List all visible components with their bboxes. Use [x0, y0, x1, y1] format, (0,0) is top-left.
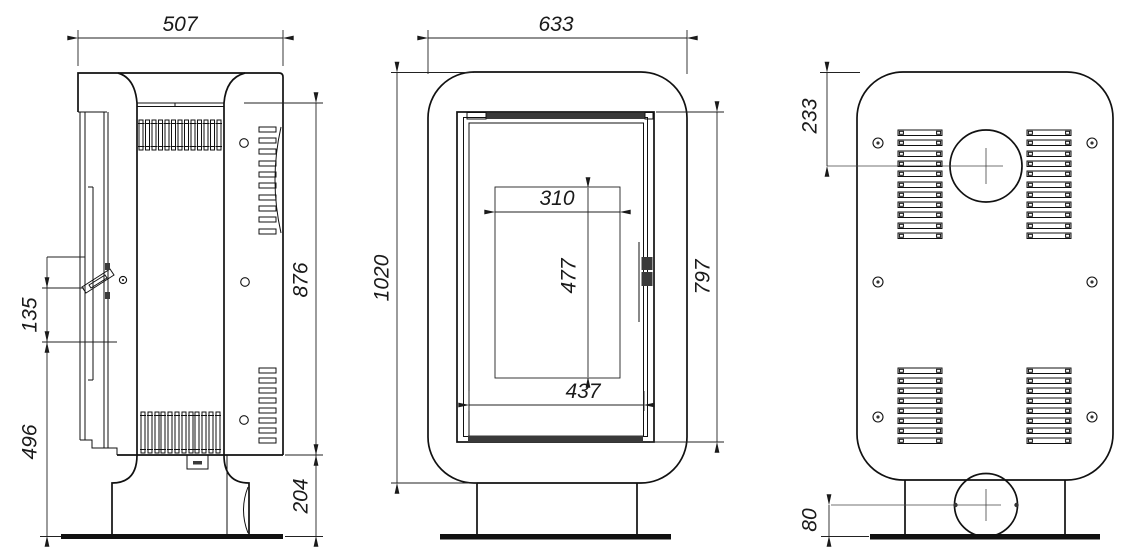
dim-label-door-height: 797 [692, 258, 715, 294]
side-pedestal [61, 455, 283, 539]
back-body-outline [857, 72, 1113, 480]
back-dimensions: 233 80 [799, 73, 869, 537]
front-base-plate [440, 534, 671, 540]
dim-label-glass-height: 477 [558, 257, 581, 293]
front-door-bottom-bar [468, 436, 643, 443]
dim-label-handle-span: 135 [19, 297, 42, 332]
dim-label-side-width: 507 [162, 13, 198, 36]
side-neck-curve-left [118, 73, 137, 103]
side-vents-top [138, 120, 222, 150]
front-door-latch-lower [642, 272, 653, 286]
dim-label-inlet-height: 80 [799, 508, 822, 532]
front-door-latch-upper [642, 257, 653, 270]
front-pedestal [440, 483, 671, 540]
side-dimensions: 507 135 496 876 204 [19, 13, 323, 537]
technical-drawing-canvas: 507 135 496 876 204 [0, 0, 1137, 559]
side-inlet-profile-arc [244, 487, 249, 533]
side-vents-back-lower [259, 368, 276, 443]
side-handle-screw-dot [122, 279, 124, 281]
air-inlet-screw-right [1014, 503, 1018, 507]
side-handle-mount-top [105, 263, 110, 270]
back-vents-upper-right [1027, 130, 1071, 239]
side-door-bottom-step [80, 440, 117, 455]
side-pedestal-front [112, 455, 137, 534]
stove-drawing-svg: 507 135 496 876 204 [0, 0, 1137, 559]
dim-label-total-height: 1020 [371, 254, 394, 301]
back-vents-lower-left [898, 368, 942, 444]
front-door [457, 112, 654, 442]
dim-label-front-width: 633 [538, 13, 573, 36]
side-vents-bottom [140, 412, 221, 453]
side-air-lever-knob [193, 461, 202, 465]
side-door [78, 112, 127, 455]
side-handle-mount-bottom [105, 292, 110, 299]
side-neck-curve-right [224, 73, 245, 103]
dim-label-glass-width: 310 [539, 187, 574, 210]
back-vents-lower-right [1027, 368, 1071, 444]
side-base-plate [61, 534, 283, 539]
back-pedestal [831, 474, 1100, 540]
front-door-top-bar [486, 113, 645, 120]
dim-label-door-width: 437 [565, 380, 601, 403]
side-vents-back-upper [259, 127, 276, 234]
back-panel-screws [873, 138, 1097, 422]
dim-label-flue-offset: 233 [799, 98, 822, 134]
side-view: 507 135 496 876 204 [19, 13, 323, 539]
back-vents-upper-left [898, 130, 942, 239]
front-door-leaf [457, 112, 654, 442]
side-panel-holes [240, 139, 250, 425]
front-door-top-cap-left [467, 113, 486, 120]
side-door-handle [82, 269, 114, 293]
dim-label-body-height: 876 [290, 262, 313, 297]
front-door-top-cap-right [645, 113, 653, 120]
dim-label-base-height: 204 [290, 478, 313, 514]
back-view: 233 80 [799, 72, 1113, 540]
dim-label-front-height: 496 [19, 424, 42, 459]
front-view: 633 1020 310 477 437 797 [371, 13, 724, 540]
